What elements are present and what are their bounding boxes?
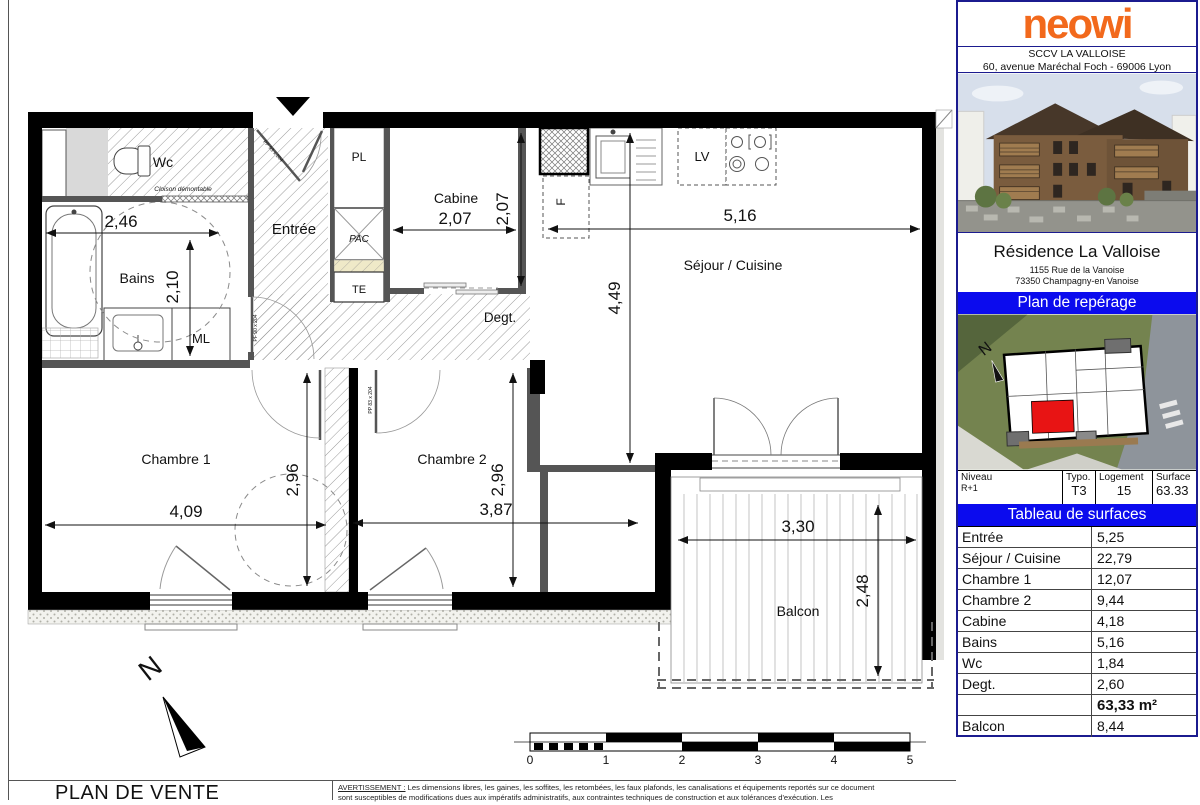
svg-text:3: 3 <box>755 753 762 767</box>
label-chambre2: Chambre 2 <box>417 451 486 467</box>
developer-address: 60, avenue Maréchal Foch - 69006 Lyon <box>958 61 1196 74</box>
svg-text:4: 4 <box>831 753 838 767</box>
logo-box: neowi <box>958 2 1196 46</box>
label-pl: PL <box>352 150 367 164</box>
bathtub <box>46 206 102 336</box>
niveau-value: R+1 <box>961 483 1059 493</box>
label-balcon: Balcon <box>777 603 820 619</box>
site-plan-drawing: N <box>958 314 1196 470</box>
building-photo <box>958 72 1196 232</box>
warning-separator <box>332 780 333 800</box>
dim-bains-height: 2,10 <box>163 270 182 303</box>
door-chambre2 <box>376 370 440 433</box>
label-bains: Bains <box>119 270 154 286</box>
residence-address-1: 1155 Rue de la Vanoise <box>958 265 1196 276</box>
surface-cell: Surface 63.33 <box>1153 471 1196 504</box>
dim-chambre2-width: 3,87 <box>479 500 512 519</box>
plan-reperage-header: Plan de repérage <box>958 292 1196 314</box>
table-row: Degt.2,60 <box>958 674 1196 695</box>
label-cabine: Cabine <box>434 190 479 206</box>
developer-name: SCCV LA VALLOISE <box>958 48 1196 61</box>
building-render <box>958 73 1196 232</box>
niveau-cell: Niveau R+1 <box>958 471 1063 504</box>
label-te: TE <box>352 284 366 296</box>
label-degt: Degt. <box>484 310 516 325</box>
kitchen-sink-unit <box>590 128 662 185</box>
label-lv: LV <box>695 149 710 164</box>
kitchen-duct <box>540 128 588 174</box>
corner-symbol <box>936 110 952 128</box>
table-row: Chambre 112,07 <box>958 569 1196 590</box>
scale-bar: 0 1 2 3 4 5 <box>514 733 926 767</box>
table-row-total: 63,33 m² <box>958 695 1196 716</box>
residence-address-2: 73350 Champagny-en Vanoise <box>958 276 1196 287</box>
dim-bains-width: 2,46 <box>104 212 137 231</box>
sheet-bottom-border <box>8 780 956 781</box>
dim-balcon-height: 2,48 <box>853 574 872 607</box>
label-ml: ML <box>192 331 210 346</box>
north-letter: N <box>133 650 168 687</box>
north-arrow: N <box>133 650 205 757</box>
dim-cabine-height: 2,07 <box>493 192 512 225</box>
label-pac: PAC <box>349 234 370 245</box>
warning-text: AVERTISSEMENT : Les dimensions libres, l… <box>338 783 946 802</box>
title-block: neowi SCCV LA VALLOISE 60, avenue Maréch… <box>956 0 1198 737</box>
dim-cabine-width: 2,07 <box>438 209 471 228</box>
table-row: Entrée5,25 <box>958 527 1196 548</box>
label-sejour: Séjour / Cuisine <box>684 257 783 273</box>
svg-text:0: 0 <box>527 753 534 767</box>
svg-text:1: 1 <box>603 753 610 767</box>
label-f: F <box>554 198 568 205</box>
surface-table: Entrée5,25 Séjour / Cuisine22,79 Chambre… <box>958 526 1196 737</box>
table-row: Bains5,16 <box>958 632 1196 653</box>
logement-value: 15 <box>1099 483 1149 498</box>
logement-cell: Logement 15 <box>1096 471 1153 504</box>
neowi-logo: neowi <box>1022 3 1131 45</box>
toilet <box>114 146 150 176</box>
warning-line-2: sont susceptibles de modifications dues … <box>338 793 946 803</box>
closet-pl <box>334 128 384 208</box>
residence-name: Résidence La Valloise <box>958 242 1196 262</box>
developer-info: SCCV LA VALLOISE 60, avenue Maréchal Foc… <box>958 46 1196 72</box>
typo-cell: Typo. T3 <box>1063 471 1096 504</box>
shower-tiles <box>42 328 98 358</box>
entrance-marker-triangle <box>276 97 310 116</box>
svg-text:5: 5 <box>907 753 914 767</box>
door-chambre1 <box>252 370 320 440</box>
sliding-door-cabine <box>424 283 498 294</box>
label-wc: Wc <box>153 154 173 170</box>
sheet-left-border <box>8 0 9 800</box>
washbasin <box>104 308 172 362</box>
label-door-bains: PF 90 x 204 <box>253 314 259 341</box>
dim-chambre2-height: 2,96 <box>488 463 507 496</box>
warning-line-1: AVERTISSEMENT : Les dimensions libres, l… <box>338 783 946 793</box>
balcony <box>657 477 934 688</box>
table-row: Séjour / Cuisine22,79 <box>958 548 1196 569</box>
plan-title: PLAN DE VENTE <box>55 782 219 805</box>
surface-value: 63.33 <box>1156 483 1193 498</box>
table-row: Balcon8,44 <box>958 716 1196 737</box>
table-row: Cabine4,18 <box>958 611 1196 632</box>
surface-table-header: Tableau de surfaces <box>958 504 1196 526</box>
cooktop <box>726 128 776 185</box>
floor-plan-drawing: 2,46 2,10 2,07 2,07 5,16 4,49 4,09 2,96 … <box>0 0 955 800</box>
label-cloison: Cloison démontable <box>154 186 212 193</box>
residence-info: Résidence La Valloise 1155 Rue de la Van… <box>958 232 1196 292</box>
french-doors-balcony <box>712 398 840 470</box>
warning-label: AVERTISSEMENT : <box>338 783 406 792</box>
typo-value: T3 <box>1066 483 1092 498</box>
table-row: Chambre 29,44 <box>958 590 1196 611</box>
label-entree: Entrée <box>272 221 316 238</box>
dim-chambre1-width: 4,09 <box>169 502 202 521</box>
table-row: Wc1,84 <box>958 653 1196 674</box>
dim-sejour-width: 5,16 <box>723 206 756 225</box>
svg-text:2: 2 <box>679 753 686 767</box>
label-chambre1: Chambre 1 <box>141 451 210 467</box>
label-door-chambre2: PP 83 x 204 <box>368 386 374 413</box>
dim-chambre1-height: 2,96 <box>283 463 302 496</box>
unit-info-table: Niveau R+1 Typo. T3 Logement 15 Surface … <box>958 470 1196 504</box>
site-plan: N <box>958 314 1196 470</box>
dim-sejour-height: 4,49 <box>605 281 624 314</box>
dim-balcon-width: 3,30 <box>781 517 814 536</box>
